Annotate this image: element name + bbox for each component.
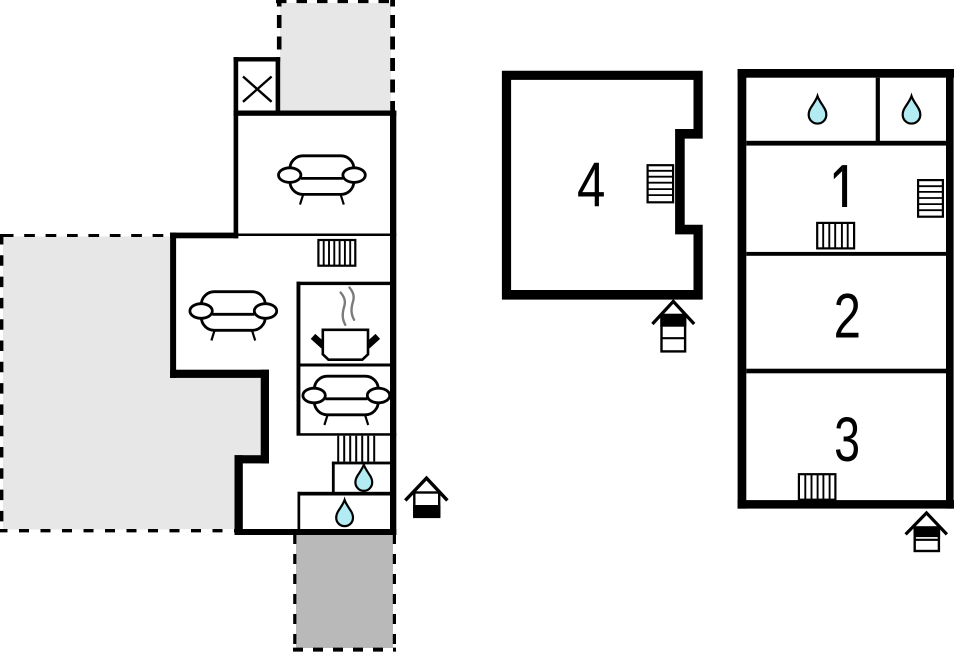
- svg-text:4: 4: [577, 151, 605, 221]
- svg-text:3: 3: [834, 404, 860, 474]
- svg-text:2: 2: [834, 281, 861, 351]
